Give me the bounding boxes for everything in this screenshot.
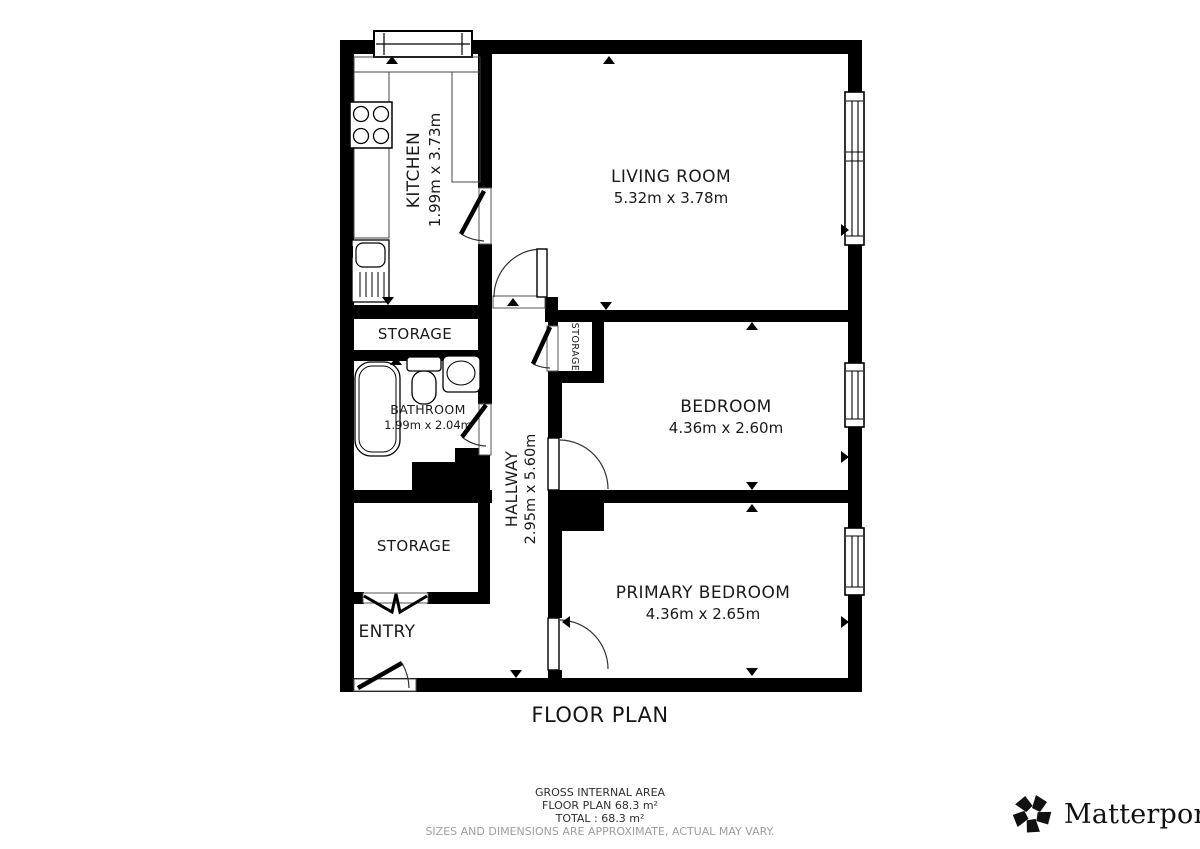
primary-bedroom-door: [548, 618, 608, 670]
stove: [350, 102, 392, 148]
footer: GROSS INTERNAL AREA FLOOR PLAN 68.3 m² T…: [300, 786, 900, 838]
matterport-logo-icon: [1008, 790, 1056, 838]
kitchen-door: [461, 188, 491, 244]
footer-total: TOTAL : 68.3 m²: [300, 812, 900, 825]
footer-disclaimer: SIZES AND DIMENSIONS ARE APPROXIMATE, AC…: [300, 825, 900, 838]
footer-area-heading: GROSS INTERNAL AREA: [300, 786, 900, 799]
matterport-branding: Matterport®: [1008, 790, 1200, 838]
bedroom-window: [845, 363, 864, 427]
bathtub: [355, 362, 400, 456]
kitchen-window: [374, 31, 472, 57]
matterport-wordmark: Matterport®: [1064, 799, 1200, 830]
toilet: [407, 357, 441, 404]
entry-door: [354, 663, 416, 691]
matterport-logo-text: Matterport: [1064, 799, 1200, 830]
living-room-door: [493, 249, 547, 308]
living-room-window: [845, 92, 864, 245]
bathroom-sink: [443, 356, 480, 392]
closet-door: [533, 326, 558, 371]
floor-plan-page: KITCHEN 1.99m x 3.73m LIVING ROOM 5.32m …: [0, 0, 1200, 849]
footer-floor-area: FLOOR PLAN 68.3 m²: [300, 799, 900, 812]
bathroom-door: [462, 404, 491, 455]
storage-bifold-door: [363, 593, 428, 612]
page-title: FLOOR PLAN: [450, 703, 750, 727]
kitchen-sink: [352, 240, 389, 302]
primary-bedroom-window: [845, 528, 864, 595]
bedroom-door: [548, 438, 608, 490]
